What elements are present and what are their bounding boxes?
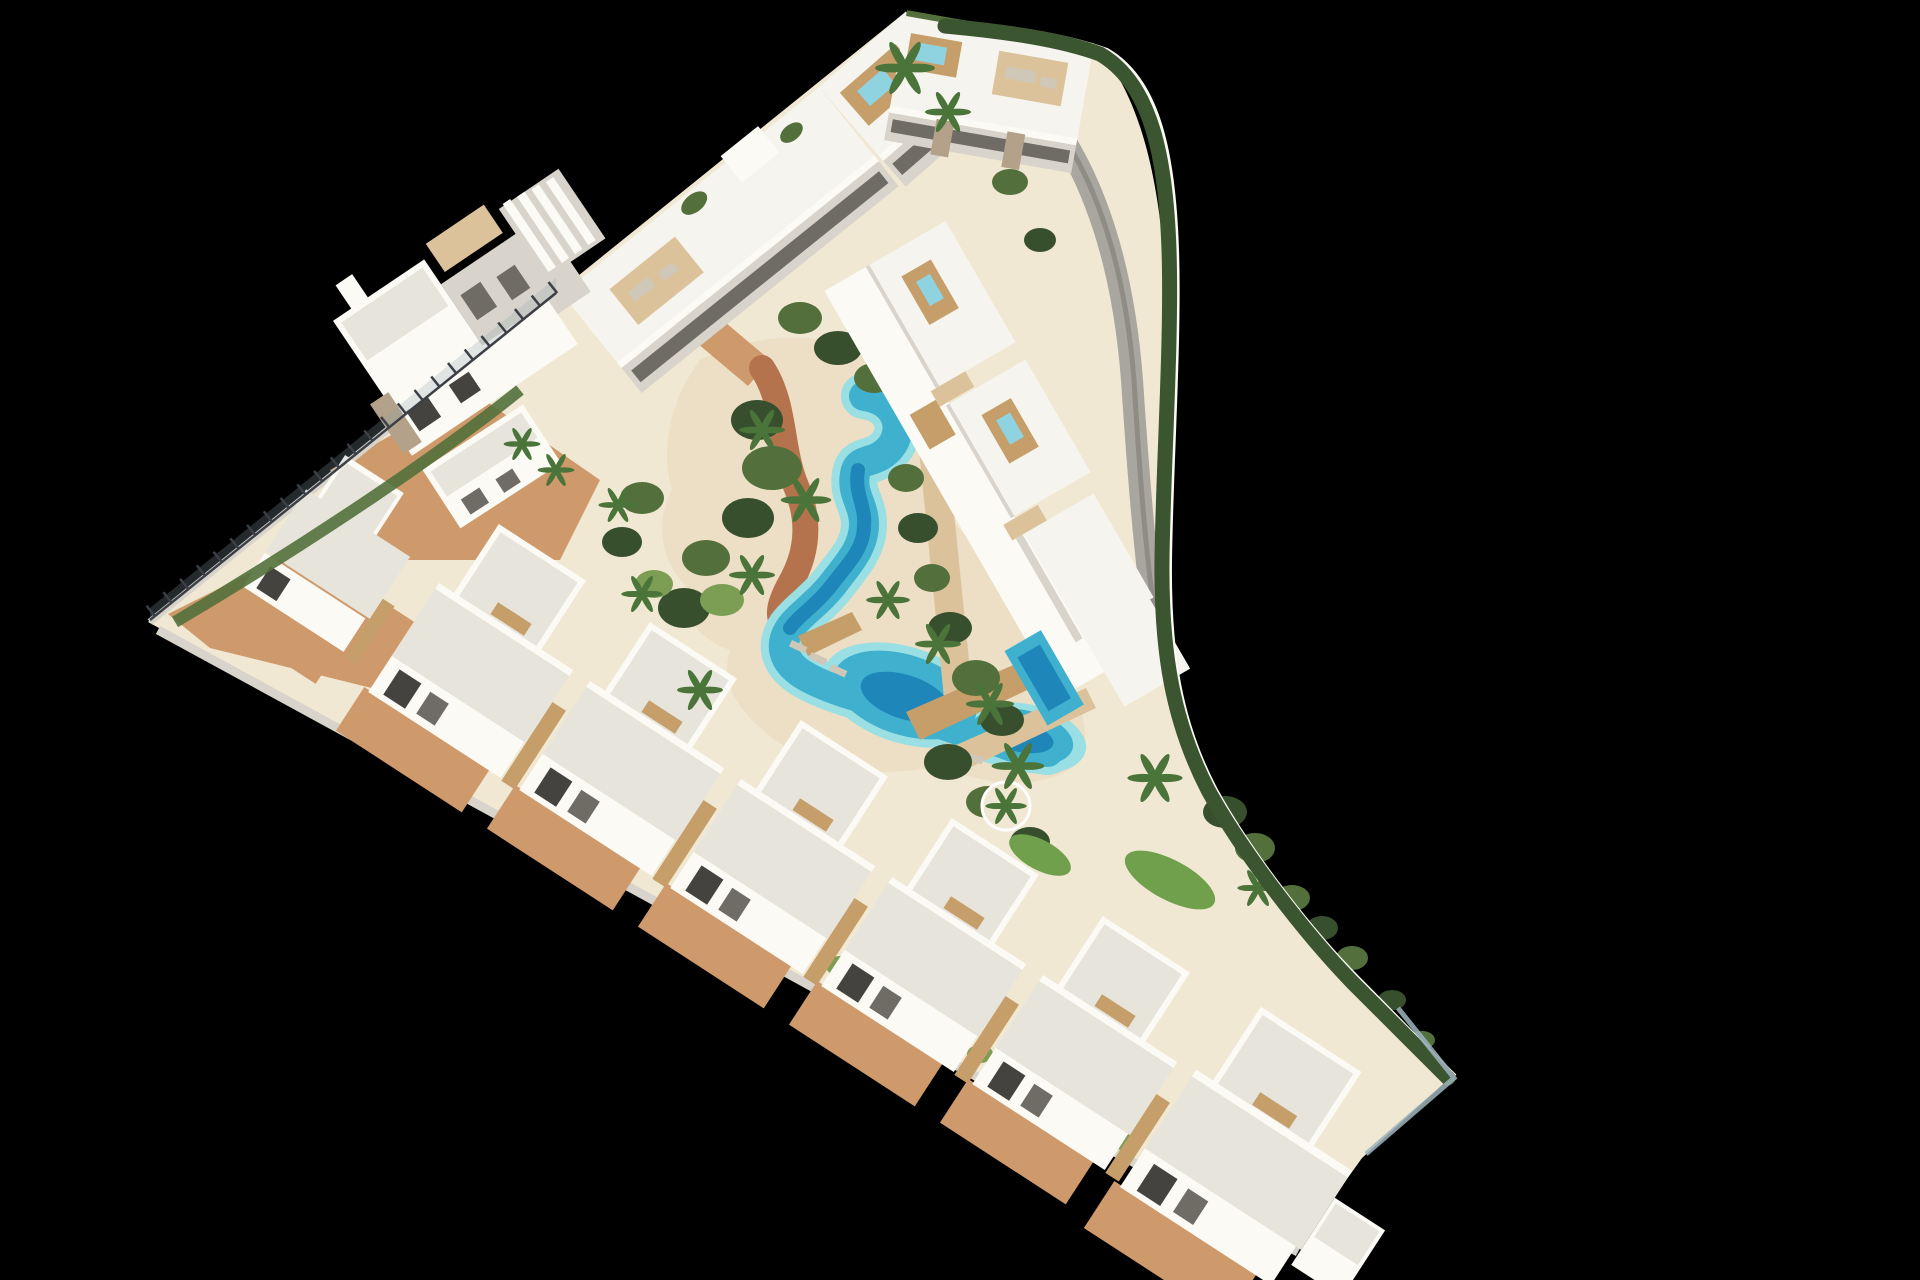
aerial-render-svg xyxy=(0,0,1920,1280)
render-image xyxy=(0,0,1920,1280)
